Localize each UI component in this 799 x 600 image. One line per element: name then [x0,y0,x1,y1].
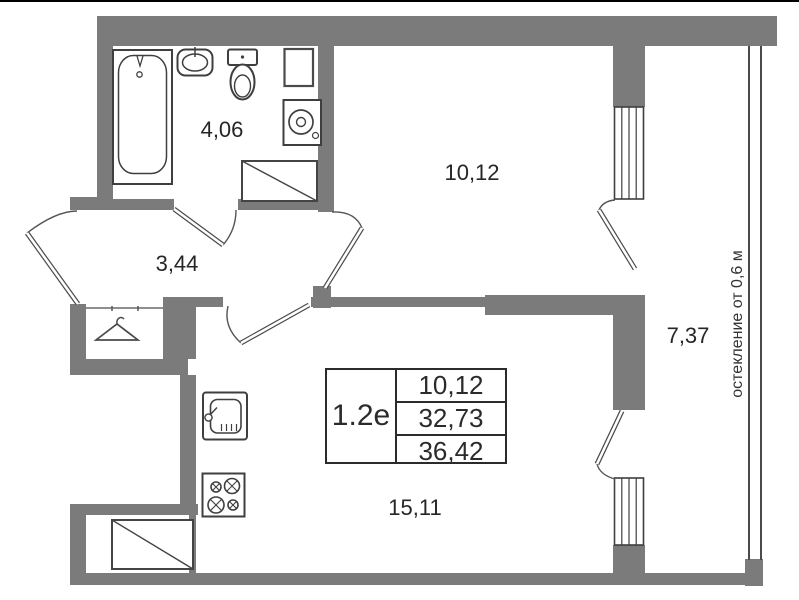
area-label-hallway: 3,44 [156,251,199,277]
area-label-bedroom: 10,12 [444,160,499,186]
area-label-balcony: 7,37 [667,323,710,349]
entrance-door [27,211,78,304]
balcony-glazing-line [749,46,761,560]
wall-wardrobe-bottom [70,359,188,375]
door-swing-icon [223,210,236,245]
bedroom-balcony-door [599,200,635,269]
floor-plan: 4,06 3,44 10,12 15,11 7,37 остекление от… [0,0,799,600]
bedroom-door [325,212,362,288]
wall-top [97,16,777,46]
wardrobe [86,306,163,340]
bathroom-door [174,209,236,245]
wall-hall-kitchen [196,297,223,307]
shaft-hatch-icon [242,161,317,201]
unit-area-without-balcony: 32,73 [397,401,505,434]
kitchen-window-icon [615,478,644,545]
balcony-glazing-note: остекление от 0,6 м [729,250,747,397]
hanger-icon [96,318,138,340]
wall-glazing-corner-block [745,559,763,586]
kitchen-balcony-door [597,411,622,479]
wall-wardrobe-left [70,304,86,364]
toilet-icon [228,50,257,100]
shaft-hatch-icon-2 [112,520,193,569]
unit-info-table: 1.2е 10,12 32,73 36,42 [325,368,507,464]
door-swing-icon [597,464,615,479]
bedroom-window-icon [615,107,644,199]
unit-type-label: 1.2е [327,370,397,462]
wall-niche-icon [285,49,314,86]
wall-balcony-bottom-block [613,545,645,585]
wall-bathroom-bottom [113,199,174,210]
wall-balcony-mid-block [613,295,645,410]
wall-wardrobe-right-block [163,297,196,359]
bathtub-icon [113,50,172,184]
wall-bathroom-left [97,16,113,210]
washing-machine-icon [284,100,322,145]
door-swing-icon [599,200,615,210]
stove-icon [203,474,245,517]
bath-sink-icon [178,47,213,76]
wall-balcony-top-block [613,42,645,107]
kitchen-door [227,305,309,343]
kitchen-sink-icon [203,393,247,440]
wall-kitchen-top-thick [485,295,613,315]
wall-kitchen-left [180,375,196,515]
unit-living-area: 10,12 [397,370,505,401]
wall-alcove-top [70,504,198,515]
area-label-bathroom: 4,06 [201,117,244,143]
wall-alcove-left [70,504,86,585]
door-swing-icon [227,306,241,343]
wall-bottom [70,573,763,585]
unit-total-area: 36,42 [397,434,505,467]
area-label-kitchen-living: 15,11 [388,495,441,521]
unit-area-values: 10,12 32,73 36,42 [397,370,505,462]
door-swing-icon [27,211,77,233]
door-swing-icon [332,212,362,228]
wall-entry-stub [70,197,113,210]
wall-kitchen-top-thin [311,297,487,307]
